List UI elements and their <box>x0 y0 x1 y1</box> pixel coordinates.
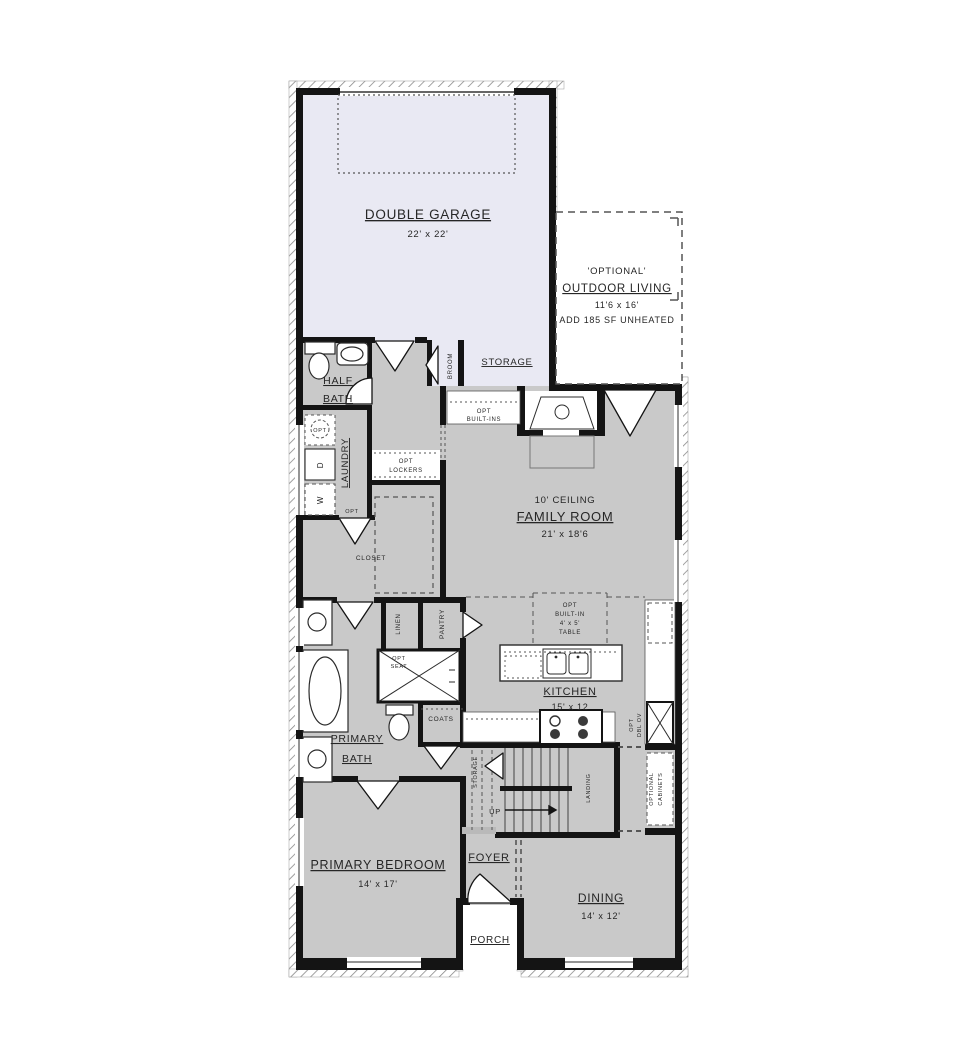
window-bottom-dining <box>565 957 633 968</box>
primary-bedroom-title: PRIMARY BEDROOM <box>310 858 445 872</box>
opt-seat-line1: OPT <box>392 656 405 662</box>
dining-title: DINING <box>578 891 624 905</box>
dining-dim: 14' x 12' <box>581 911 620 921</box>
foyer-title: FOYER <box>468 852 509 864</box>
closet-title: CLOSET <box>356 555 386 562</box>
window-left-tub <box>295 652 304 730</box>
primary-bath-line1: PRIMARY <box>331 733 384 745</box>
linen-title: LINEN <box>396 613 402 634</box>
pantry-title: PANTRY <box>439 609 446 639</box>
floor-plan-drawing: DOUBLE GARAGE 22' x 22' 'OPTIONAL' OUTDO… <box>0 0 980 1060</box>
stair-storage-title: STORAGE <box>473 756 479 788</box>
window-left-vanity1 <box>295 608 304 646</box>
outdoor-living-title: OUTDOOR LIVING <box>562 283 671 295</box>
landing-title: LANDING <box>586 773 592 802</box>
half-bath-line1: HALF <box>323 375 353 387</box>
lockers-line1: OPT <box>399 459 413 465</box>
optional-cabinets-line1: OPTIONAL <box>649 772 655 805</box>
opt-table-line3: 4' x 5' <box>560 621 580 627</box>
up-label: UP <box>489 807 501 816</box>
porch-title: PORCH <box>470 935 510 946</box>
optional-cabinets-line2: CABINETS <box>658 772 664 805</box>
opt-lockers <box>372 450 440 480</box>
washer-label: W <box>316 496 325 504</box>
opt-table-line2: BUILT-IN <box>555 612 585 618</box>
window-bottom-bedroom <box>347 957 421 968</box>
builtins-line2: BUILT-INS <box>467 417 502 423</box>
dryer-label: D <box>316 462 325 468</box>
opt-dbl-ov-line1: OPT <box>629 718 635 731</box>
window-right-family2 <box>674 540 683 602</box>
kitchen-title: KITCHEN <box>543 686 596 698</box>
half-bath-line2: BATH <box>323 393 353 405</box>
garage-dim: 22' x 22' <box>407 229 448 240</box>
family-title: FAMILY ROOM <box>517 509 614 524</box>
outdoor-living-outline <box>556 212 682 384</box>
opt-seat-line2: SEAT <box>391 664 408 670</box>
window-right-family1 <box>674 405 683 467</box>
opt-table-line4: TABLE <box>559 630 581 636</box>
window-left-bedroom <box>295 818 304 886</box>
floor-plan-page: DOUBLE GARAGE 22' x 22' 'OPTIONAL' OUTDO… <box>0 0 980 1060</box>
window-left-laundry <box>295 425 304 515</box>
outdoor-living-dim: 11'6 x 16' <box>595 300 639 310</box>
outdoor-living-note: ADD 185 SF UNHEATED <box>559 315 674 325</box>
window-left-vanity2 <box>295 739 304 777</box>
kitchen-dim: 15' x 12 <box>552 702 589 712</box>
primary-bedroom-dim: 14' x 17' <box>358 879 397 889</box>
family-dim: 21' x 18'6 <box>541 529 588 540</box>
garage-title: DOUBLE GARAGE <box>365 207 491 222</box>
opt-door-label: OPT <box>345 509 358 515</box>
laundry-title: LAUNDRY <box>340 438 351 488</box>
family-ceiling: 10' CEILING <box>535 495 596 506</box>
opt-dbl-ov-line2: DBL OV <box>637 713 643 737</box>
primary-bath-line2: BATH <box>342 753 372 765</box>
builtins-line1: OPT <box>477 409 491 415</box>
lockers-line2: LOCKERS <box>389 468 423 474</box>
opt-table-line1: OPT <box>563 603 577 609</box>
outdoor-living-tag: 'OPTIONAL' <box>588 266 647 277</box>
broom-title: BROOM <box>448 353 454 379</box>
storage-title: STORAGE <box>481 357 532 368</box>
laundry-opt-sink: OPT <box>313 428 326 434</box>
coats-title: COATS <box>428 716 453 723</box>
